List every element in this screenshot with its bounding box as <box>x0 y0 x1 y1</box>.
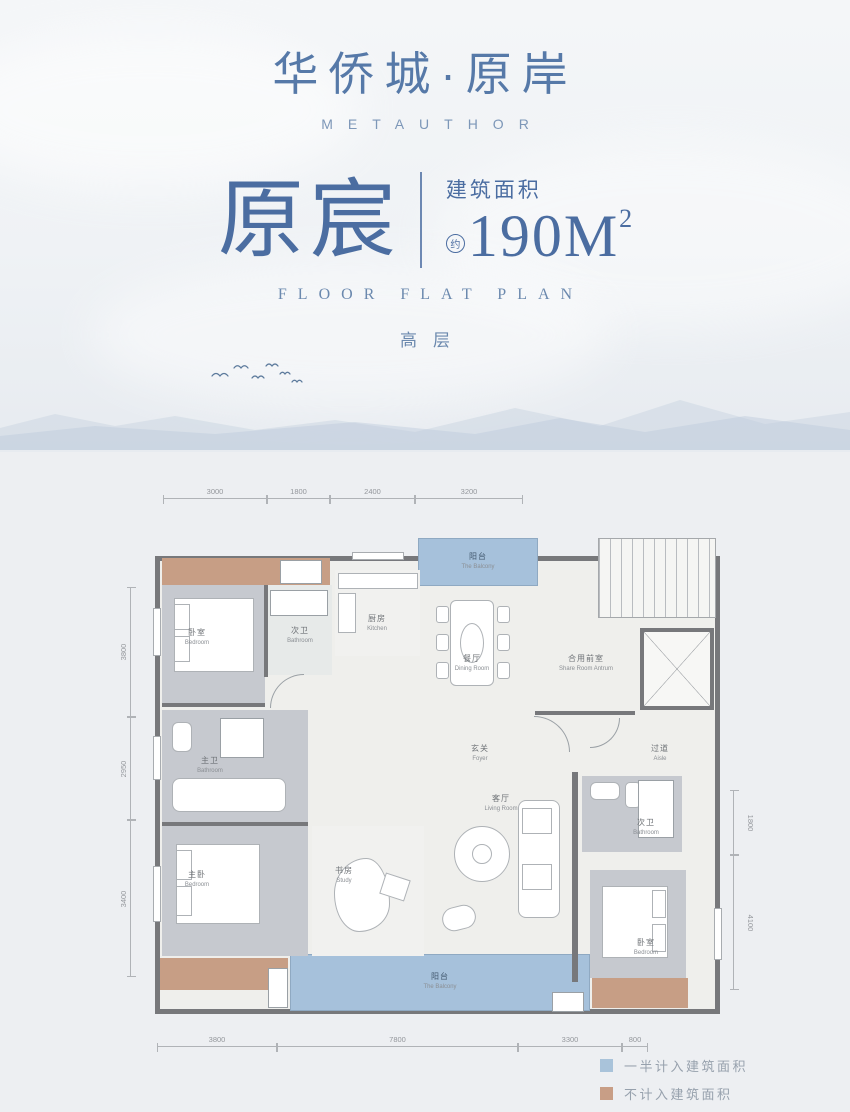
shaft-hatch <box>268 968 288 1008</box>
toilet <box>172 722 192 752</box>
legend-swatch-tan <box>600 1087 613 1100</box>
bathtub <box>172 778 286 812</box>
dimension-top: 3200 <box>415 498 523 508</box>
room-label-study: 书房Study <box>316 866 372 885</box>
approx-circle: 约 <box>446 234 465 253</box>
dimension-top: 2400 <box>330 498 415 508</box>
window <box>153 608 161 656</box>
chair <box>436 606 449 623</box>
room-label-master-bathroom: 主卫Bathroom <box>180 756 240 775</box>
wall-segment <box>572 772 578 982</box>
room-label-living-room: 客厅Living Room <box>466 794 536 813</box>
sink <box>590 782 620 800</box>
uncounted-area-bottom-right <box>592 978 688 1008</box>
elevator-shaft <box>640 628 714 710</box>
room-label-bedroom-top-left: 卧室Bedroom <box>168 628 226 647</box>
brand-logo-english: METAUTHOR <box>0 116 850 132</box>
dimension-right: 4100 <box>733 855 743 990</box>
floor-plan: 3000 1800 2400 3200 3800 7800 3300 800 3… <box>120 478 750 1078</box>
unit-title-row: 原宸 建筑面积 约 190M 2 <box>0 172 850 268</box>
floor-type-label: 高层 <box>0 326 850 351</box>
window <box>153 866 161 922</box>
room-label-balcony-bottom: 阳台The Balcony <box>408 972 472 991</box>
area-label: 建筑面积 <box>446 174 542 204</box>
pillow <box>652 890 666 918</box>
chair <box>497 606 510 623</box>
mountains-decoration <box>0 372 850 450</box>
legend-item-not-counted: 不计入建筑面积 <box>600 1084 748 1103</box>
window <box>714 908 722 960</box>
room-label-aisle: 过道Aisle <box>632 744 688 763</box>
dimension-top: 3000 <box>163 498 267 508</box>
room-label-bedroom-bottom-right: 卧室Bedroom <box>616 938 676 957</box>
legend-swatch-blue <box>600 1059 613 1072</box>
room-label-bathroom-top: 次卫Bathroom <box>270 626 330 645</box>
unit-name: 原宸 <box>218 177 402 263</box>
area-superscript: 2 <box>619 204 632 234</box>
floor-plan-subtitle: FLOOR FLAT PLAN <box>0 286 850 304</box>
hero-section: 华侨城·原岸 METAUTHOR 原宸 建筑面积 约 190M 2 FLOOR … <box>0 0 850 452</box>
shower-top-bathroom <box>270 590 328 616</box>
area-line: 约 190M 2 <box>446 206 632 266</box>
dimension-bottom: 3300 <box>518 1046 622 1056</box>
poster-page: { "brand": { "logo_cn": "华侨城·原岸", "logo_… <box>0 0 850 1108</box>
room-label-bathroom-bottom-right: 次卫Bathroom <box>616 818 676 837</box>
chair <box>436 634 449 651</box>
window <box>352 552 404 560</box>
shaft-hatch <box>552 992 584 1012</box>
dimension-bottom: 800 <box>622 1046 648 1056</box>
dimension-left: 3800 <box>130 587 140 717</box>
shower-master-bathroom <box>220 718 264 758</box>
dimension-top: 1800 <box>267 498 330 508</box>
kitchen-counter <box>338 573 418 589</box>
room-label-share-room: 合用前室Share Room Antrum <box>540 654 632 673</box>
brand-logo: 华侨城·原岸 METAUTHOR <box>0 38 850 132</box>
legend: 一半计入建筑面积 不计入建筑面积 <box>600 1056 748 1112</box>
wall-segment <box>535 711 635 715</box>
pillow <box>174 604 190 630</box>
dimension-right: 1800 <box>733 790 743 855</box>
wall-segment <box>162 822 308 826</box>
room-label-foyer: 玄关Foyer <box>450 744 510 763</box>
room-label-master-bedroom: 主卧Bedroom <box>168 870 226 889</box>
shaft-hatch <box>280 560 322 584</box>
area-block: 建筑面积 约 190M 2 <box>446 174 632 266</box>
sofa-pillow <box>522 864 552 890</box>
brand-logo-chinese: 华侨城·原岸 <box>0 38 850 104</box>
dimension-bottom: 3800 <box>157 1046 277 1056</box>
stairs <box>598 538 716 618</box>
wall-segment <box>264 585 268 677</box>
chair <box>497 634 510 651</box>
dimension-left: 2950 <box>130 717 140 820</box>
window <box>153 736 161 780</box>
dimension-bottom: 7800 <box>277 1046 518 1056</box>
room-label-balcony-top: 阳台The Balcony <box>448 552 508 571</box>
title-divider <box>420 172 422 268</box>
room-label-dining: 餐厅Dining Room <box>430 654 514 673</box>
legend-item-half-counted: 一半计入建筑面积 <box>600 1056 748 1075</box>
area-value: 190M <box>468 206 619 266</box>
dimension-left: 3400 <box>130 820 140 977</box>
coffee-table-inner <box>472 844 492 864</box>
room-label-kitchen: 厨房Kitchen <box>348 614 406 633</box>
pillow <box>176 886 192 916</box>
wall-segment <box>162 703 265 707</box>
